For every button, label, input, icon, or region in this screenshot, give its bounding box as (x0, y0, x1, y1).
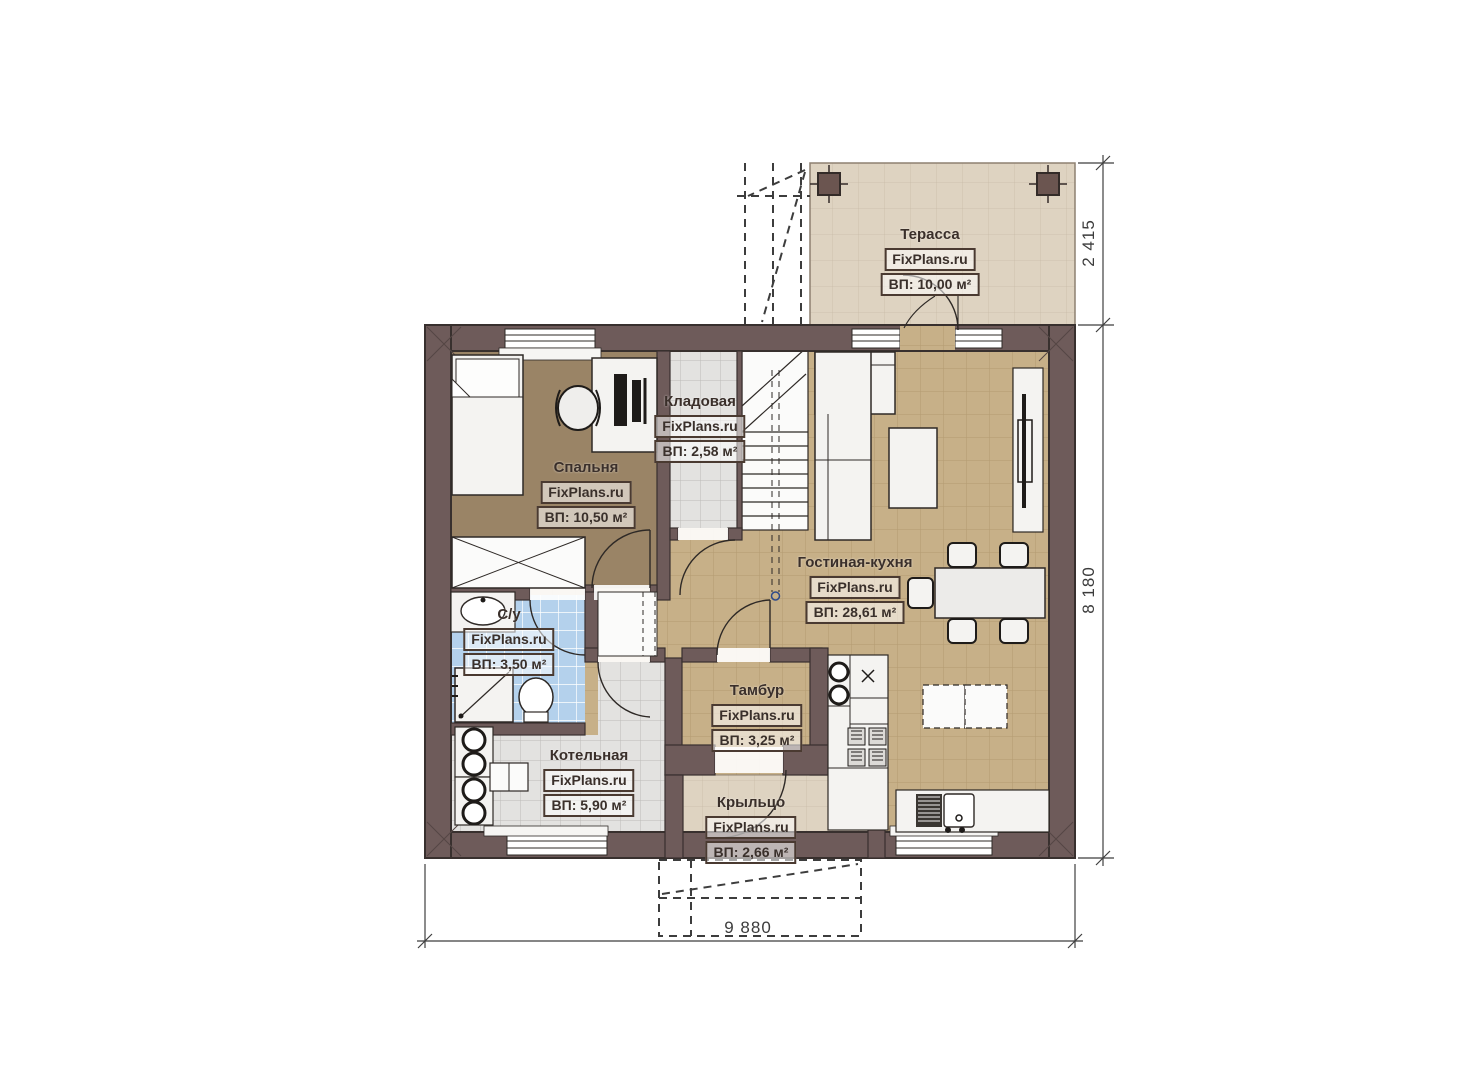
room-name: Котельная (550, 747, 629, 764)
room-label-terrace: Терасса FixPlans.ru ВП: 10,00 м² (881, 226, 980, 296)
coffee-table (889, 428, 937, 508)
room-label-bedroom: Спальня FixPlans.ru ВП: 10,50 м² (537, 459, 636, 529)
brand-watermark: FixPlans.ru (809, 576, 900, 599)
dresser (452, 537, 585, 588)
room-area: ВП: 10,00 м² (881, 273, 980, 296)
dimension-terrace-depth: 2 415 (1079, 219, 1099, 267)
room-area: ВП: 5,90 м² (544, 794, 635, 817)
room-label-porch: Крыльцо FixPlans.ru ВП: 2,66 м² (705, 794, 796, 864)
desk-chair (556, 386, 600, 430)
room-area: ВП: 3,50 м² (464, 653, 555, 676)
room-area: ВП: 28,61 м² (806, 601, 905, 624)
desk (592, 358, 657, 452)
room-area: ВП: 3,25 м² (712, 729, 803, 752)
room-area: ВП: 10,50 м² (537, 506, 636, 529)
toilet (519, 678, 553, 722)
terrace-door-opening (900, 326, 955, 350)
kitchen-island (923, 685, 1007, 728)
room-area: ВП: 2,66 м² (706, 841, 797, 864)
tv-stand (1013, 368, 1043, 532)
shower (452, 668, 513, 722)
room-label-vestibule: Тамбур FixPlans.ru ВП: 3,25 м² (711, 682, 802, 752)
floor-plan-canvas: Терасса FixPlans.ru ВП: 10,00 м² Кладова… (0, 0, 1473, 1080)
room-label-bathroom: С/у FixPlans.ru ВП: 3,50 м² (463, 606, 554, 676)
room-name: Гостиная-кухня (798, 554, 913, 571)
bed (452, 355, 523, 495)
brand-watermark: FixPlans.ru (711, 704, 802, 727)
roof-projection-dashed (737, 163, 810, 325)
room-name: Кладовая (664, 393, 736, 410)
brand-watermark: FixPlans.ru (705, 816, 796, 839)
brand-watermark: FixPlans.ru (884, 248, 975, 271)
kitchen-sink-counter (896, 790, 1049, 833)
brand-watermark: FixPlans.ru (654, 415, 745, 438)
window-terrace-right (955, 329, 1002, 348)
room-name: Тамбур (730, 682, 784, 699)
room-area: ВП: 2,58 м² (655, 440, 746, 463)
room-name: Крыльцо (717, 794, 785, 811)
room-label-storage: Кладовая FixPlans.ru ВП: 2,58 м² (654, 393, 745, 463)
room-name: Терасса (900, 226, 959, 243)
window-terrace-left (852, 329, 900, 348)
brand-watermark: FixPlans.ru (543, 769, 634, 792)
room-label-living-kitchen: Гостиная-кухня FixPlans.ru ВП: 28,61 м² (798, 554, 913, 624)
room-label-boiler-room: Котельная FixPlans.ru ВП: 5,90 м² (543, 747, 634, 817)
brand-watermark: FixPlans.ru (463, 628, 554, 651)
dimension-bottom-width: 9 880 (724, 918, 772, 938)
brand-watermark: FixPlans.ru (540, 481, 631, 504)
dimension-right-height: 8 180 (1079, 566, 1099, 614)
wardrobe (598, 592, 657, 656)
room-name: Спальня (554, 459, 619, 476)
room-name: С/у (497, 606, 520, 623)
